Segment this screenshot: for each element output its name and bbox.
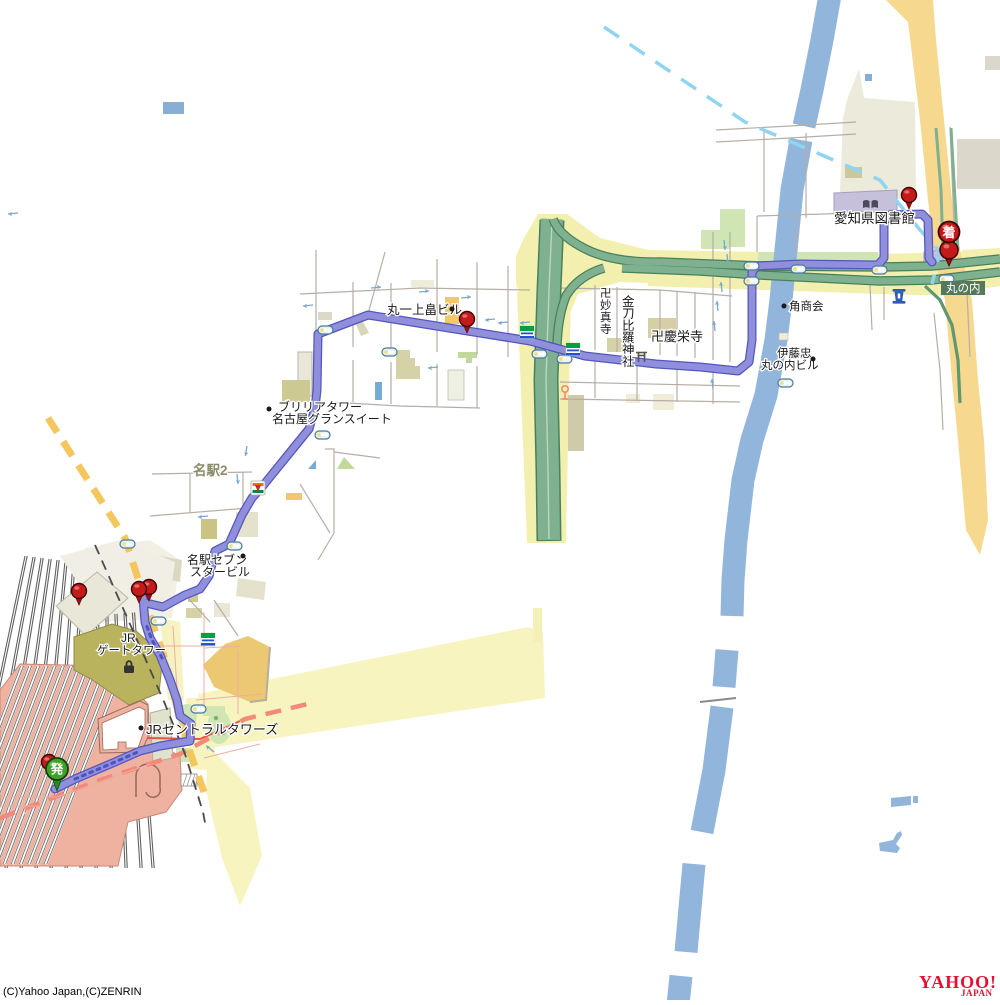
svg-text:ゲートタワー: ゲートタワー (97, 644, 166, 657)
svg-text:伊藤忠: 伊藤忠 (777, 347, 812, 360)
svg-text:妙: 妙 (600, 298, 612, 312)
svg-text:社: 社 (622, 354, 635, 369)
svg-text:スタービル: スタービル (190, 565, 250, 579)
svg-text:(C)Yahoo Japan,(C)ZENRIN: (C)Yahoo Japan,(C)ZENRIN (3, 986, 142, 998)
svg-text:角商会: 角商会 (789, 299, 824, 313)
svg-text:丸の内ビル: 丸の内ビル (761, 358, 819, 372)
svg-text:JR: JR (121, 631, 136, 645)
svg-text:卍慶栄寺: 卍慶栄寺 (651, 329, 703, 344)
svg-text:丸の内: 丸の内 (946, 281, 981, 295)
svg-text:名古屋グランスイート: 名古屋グランスイート (272, 411, 392, 426)
svg-text:真: 真 (600, 310, 612, 324)
svg-text:卍: 卍 (600, 287, 612, 300)
svg-text:名駅2: 名駅2 (193, 462, 228, 478)
svg-text:JRセントラルタワーズ: JRセントラルタワーズ (146, 722, 278, 737)
svg-text:発: 発 (50, 762, 64, 777)
svg-text:寺: 寺 (600, 323, 612, 336)
svg-text:着: 着 (941, 225, 955, 240)
svg-text:愛知県図書館: 愛知県図書館 (834, 210, 915, 226)
svg-text:JAPAN: JAPAN (961, 988, 993, 998)
